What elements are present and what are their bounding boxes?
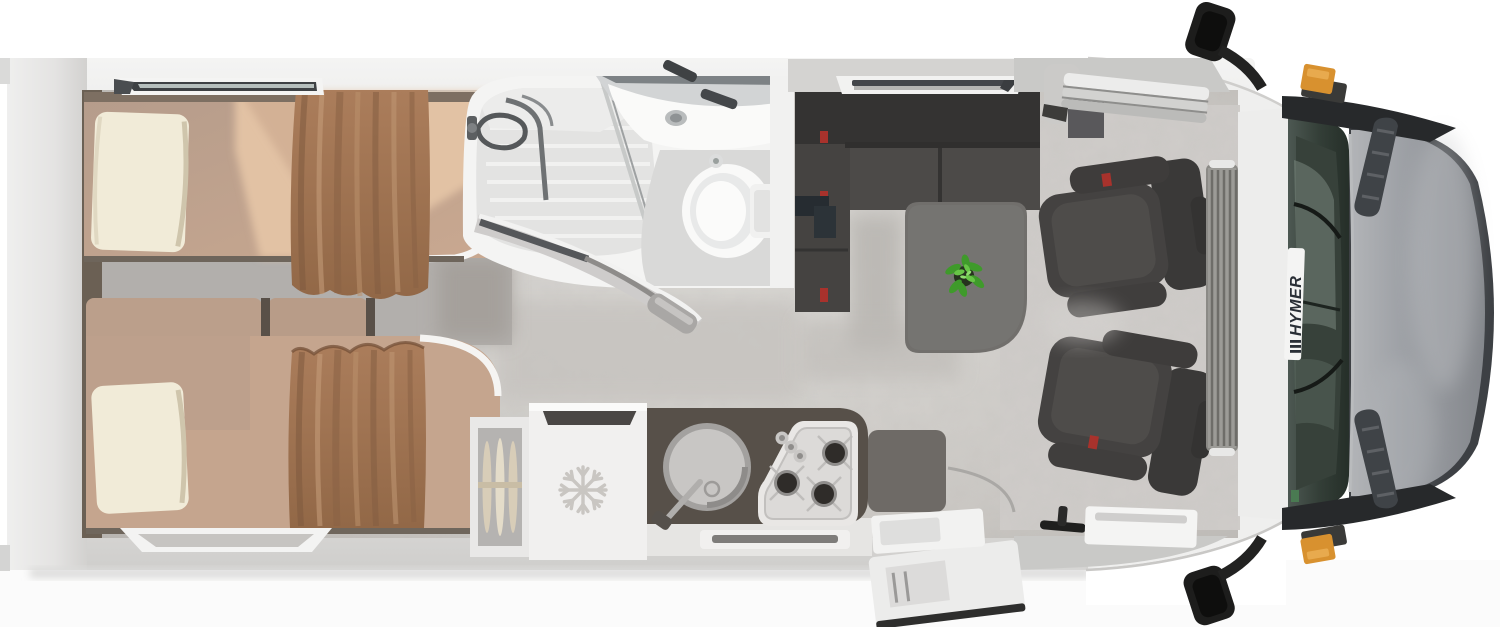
svg-text:HYMER: HYMER [1288, 276, 1305, 336]
